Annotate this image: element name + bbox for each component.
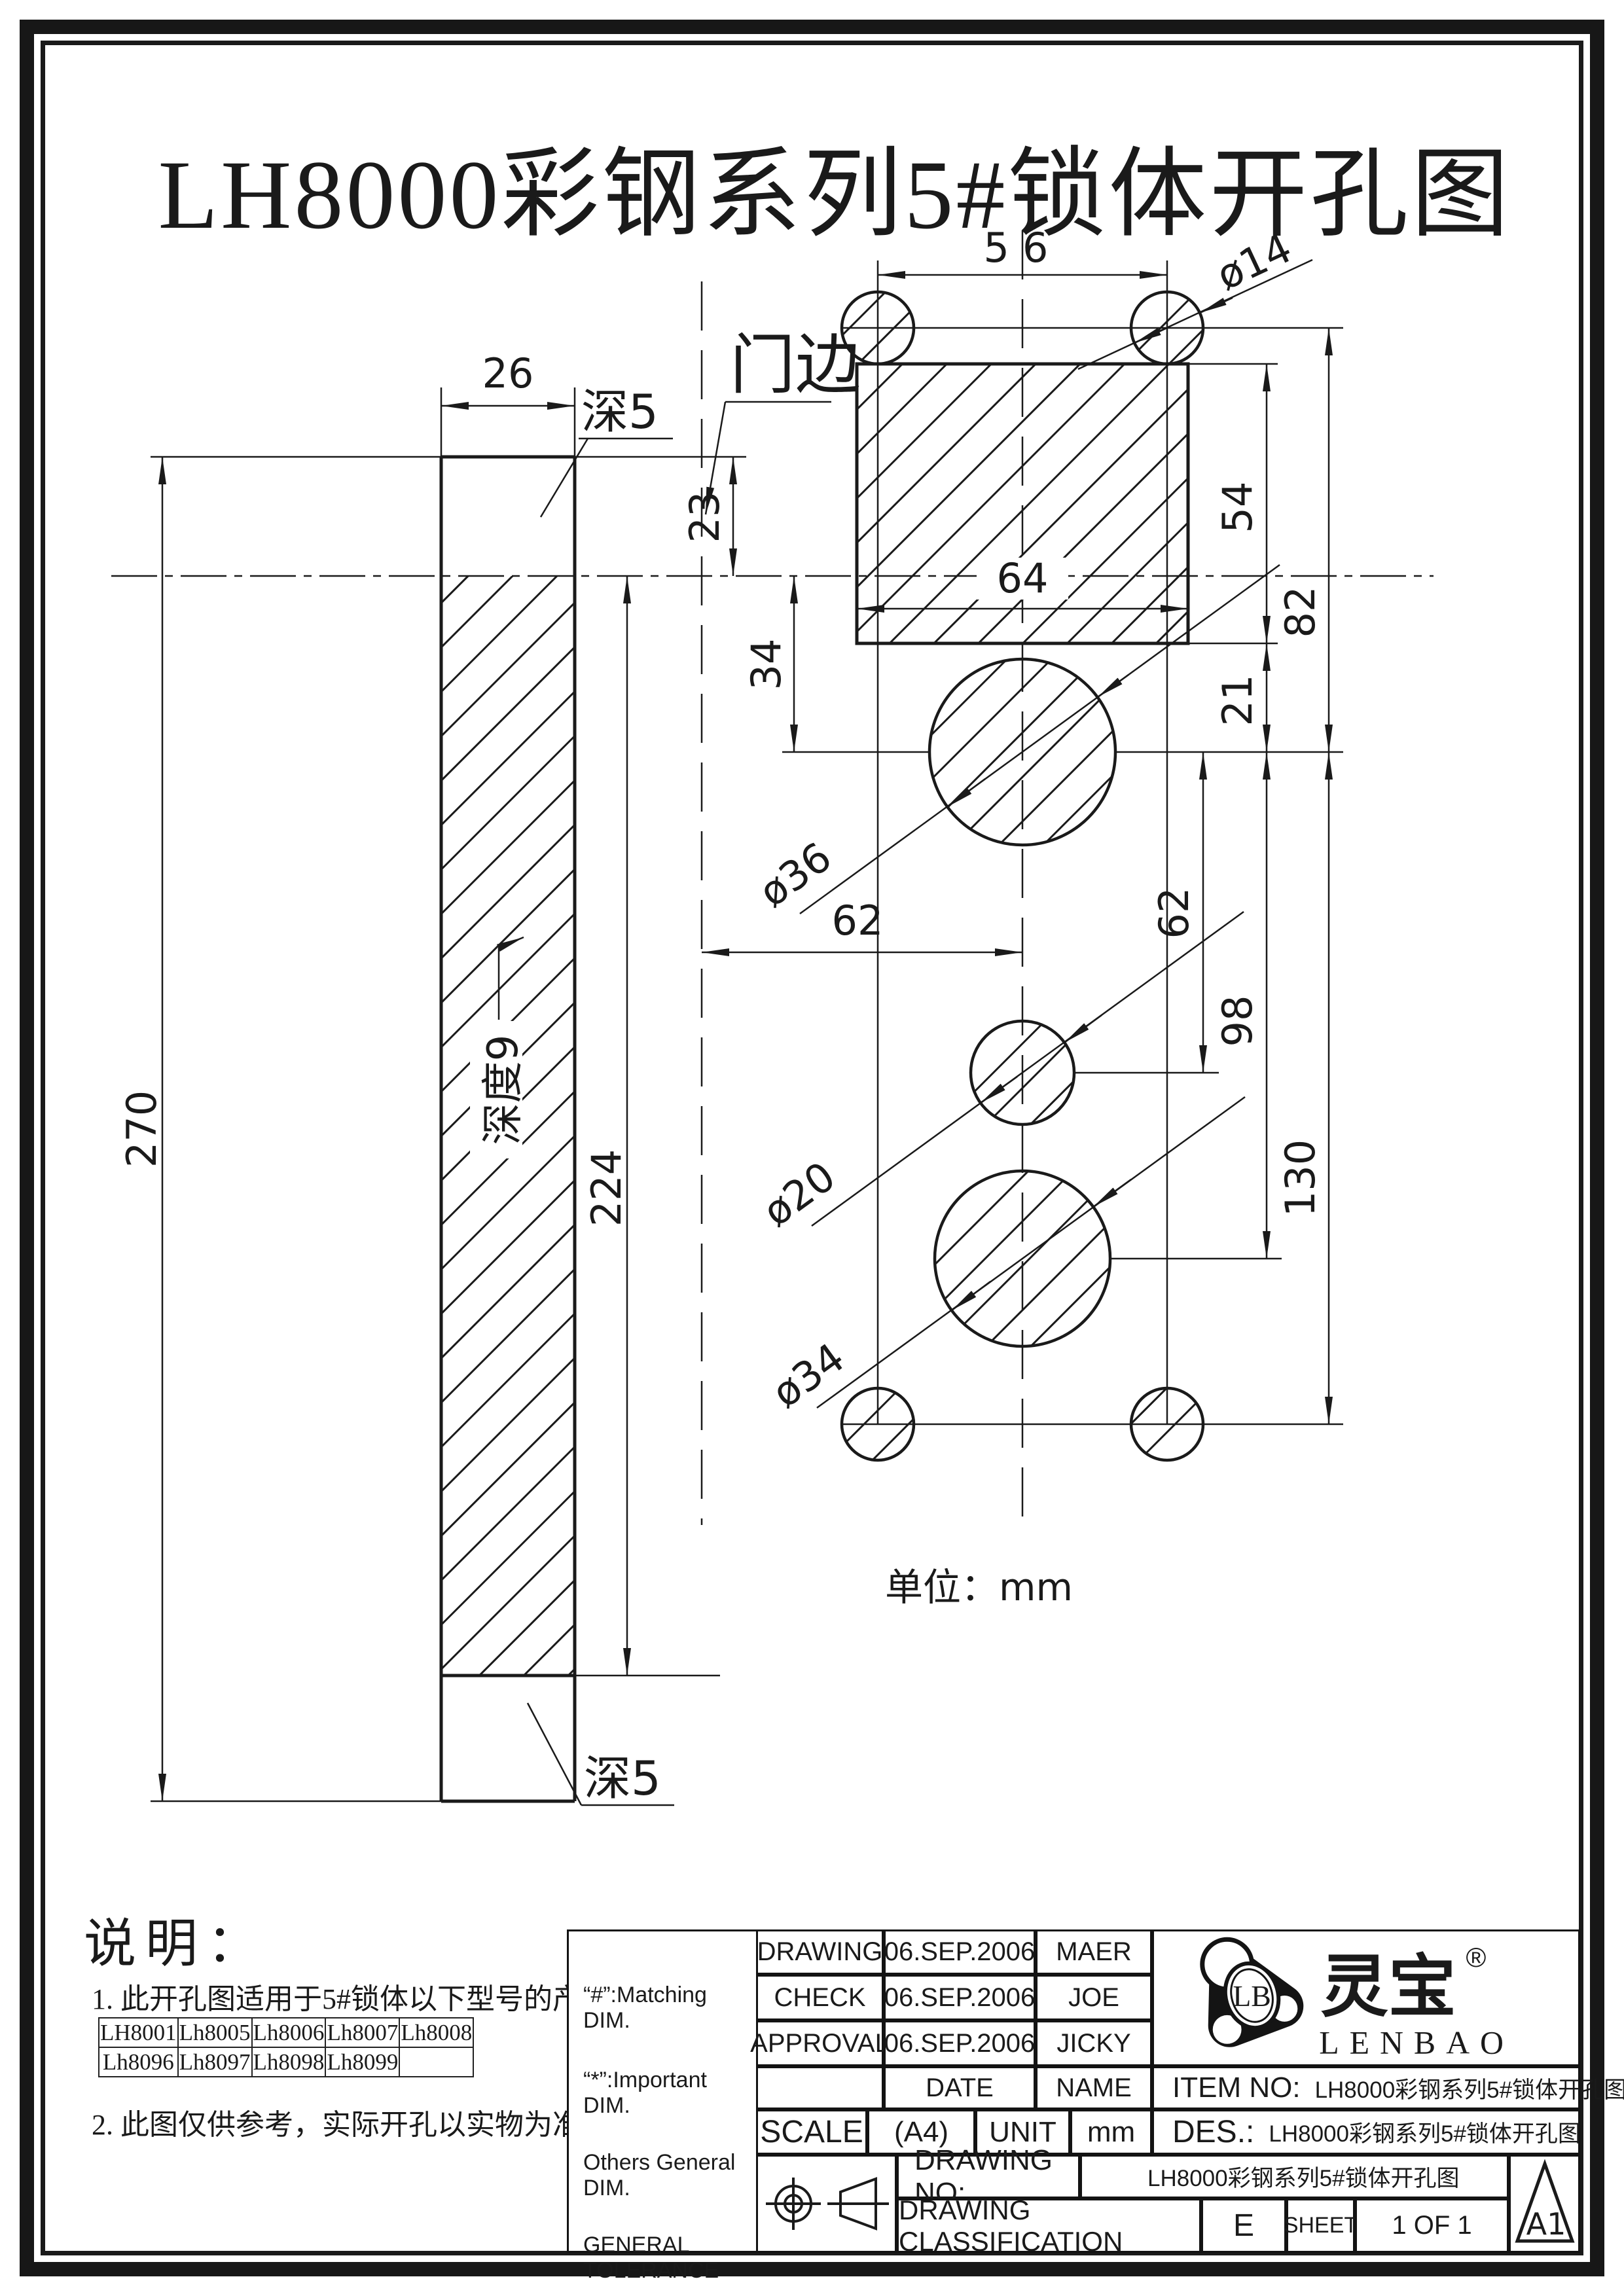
depth5-bottom-label: 深5 (584, 1751, 661, 1806)
size-code-triangle-icon: A1 (1512, 2157, 1578, 2250)
unit-note: 单位：mm (885, 1565, 1073, 1609)
dim-62-vertical: 62 (1150, 888, 1198, 939)
logo-monogram: LB (1233, 1979, 1271, 2012)
approval-date-cell: 06.SEP.2006 (884, 2020, 1036, 2066)
dim-64: 64 (997, 554, 1049, 602)
registered-mark-icon: ® (1466, 1942, 1487, 1973)
lock-body-view (782, 260, 1343, 1460)
lenbao-logo: LB 灵宝 ® LENBAO (1154, 1933, 1578, 2064)
drawing-no-value-cell: LH8000彩钢系列5#锁体开孔图 (1080, 2155, 1509, 2198)
note-1: 1. 此开孔图适用于5#锁体以下型号的产品： (92, 1975, 639, 2017)
item-no-value: LH8000彩钢系列5#锁体开孔图 (1315, 2072, 1624, 2105)
sheet-label-cell: SHEET (1286, 2198, 1355, 2253)
model-cell: Lh8098 (252, 2047, 326, 2077)
model-cell: Lh8005 (178, 2018, 252, 2047)
dia-36-label: ø36 (750, 833, 840, 916)
des-label: DES.: (1172, 2114, 1254, 2150)
dim-23: 23 (681, 492, 729, 543)
dim-54: 54 (1214, 482, 1261, 533)
third-angle-projection-icon (759, 2158, 893, 2250)
dim-21: 21 (1214, 675, 1261, 726)
depth9-label: 深度9 (479, 1035, 528, 1145)
dim-224: 224 (583, 1149, 630, 1227)
des-cell: DES.: LH8000彩钢系列5#锁体开孔图 (1152, 2109, 1580, 2155)
approval-role-cell: APPROVAL (756, 2020, 884, 2066)
dim-34: 34 (742, 639, 790, 691)
classification-value-cell: E (1201, 2198, 1286, 2253)
drawing-role-cell: DRAWING (756, 1929, 884, 1975)
model-cell: Lh8006 (252, 2018, 326, 2047)
company-logo-cell: LB 灵宝 ® LENBAO (1152, 1929, 1580, 2066)
tolerance-notes-cell: “#”:Matching DIM. “*”:Important DIM. Oth… (567, 1929, 758, 2253)
model-cell: Lh8097 (178, 2047, 252, 2077)
tolerance-matching: “#”:Matching DIM. (583, 1982, 756, 2034)
door-edge-label: 门边 (730, 327, 861, 403)
model-cell: Lh8096 (99, 2047, 178, 2077)
logo-latin-name: LENBAO (1319, 2024, 1514, 2060)
note-2: 2. 此图仅供参考，实际开孔以实物为准. (92, 2101, 588, 2143)
des-value: LH8000彩钢系列5#锁体开孔图 (1269, 2115, 1581, 2149)
dim-98: 98 (1214, 996, 1261, 1047)
model-cell: Lh8007 (325, 2018, 399, 2047)
dim-56: 56 (984, 224, 1062, 272)
table-row: Lh8096 Lh8097 Lh8098 Lh8099 (99, 2047, 473, 2077)
scale-label-cell: SCALE (756, 2109, 867, 2155)
approval-name-cell: JICKY (1036, 2020, 1152, 2066)
dim-130: 130 (1276, 1139, 1324, 1217)
size-code-cell: A1 (1509, 2155, 1580, 2253)
drawing-sheet: LH8000彩钢系列5#锁体开孔图 (0, 0, 1624, 2296)
unit-value-cell: mm (1070, 2109, 1152, 2155)
dia-20-label: ø20 (754, 1152, 844, 1236)
check-date-cell: 06.SEP.2006 (884, 1975, 1036, 2020)
model-cell: Lh8008 (399, 2018, 473, 2047)
tolerance-general-1: GENERAL TOLERANCE (583, 2233, 756, 2284)
notes-heading: 说明： (84, 1901, 268, 1977)
model-cell: Lh8099 (325, 2047, 399, 2077)
dia-14-label: ø14 (1209, 224, 1299, 300)
date-header-cell: DATE (884, 2066, 1036, 2109)
model-table: LH8001 Lh8005 Lh8006 Lh8007 Lh8008 Lh809… (98, 2017, 474, 2077)
door-edge-section (151, 387, 746, 1801)
blank-cell (756, 2066, 884, 2109)
dia-34-label: ø34 (763, 1333, 853, 1417)
depth5-top-label: 深5 (581, 384, 659, 439)
technical-drawing: 26 深5 23 270 224 深度9 深5 门边 56 ø14 64 34 … (0, 216, 1624, 1852)
item-no-cell: ITEM NO: LH8000彩钢系列5#锁体开孔图 (1152, 2066, 1580, 2109)
drawing-date-cell: 06.SEP.2006 (884, 1929, 1036, 1975)
item-no-label: ITEM NO: (1172, 2072, 1301, 2104)
table-row: LH8001 Lh8005 Lh8006 Lh8007 Lh8008 (99, 2018, 473, 2047)
projection-symbol-cell (756, 2155, 897, 2253)
model-cell (399, 2047, 473, 2077)
check-name-cell: JOE (1036, 1975, 1152, 2020)
dim-270: 270 (118, 1090, 166, 1168)
model-cell: LH8001 (99, 2018, 178, 2047)
logo-chinese-name: 灵宝 (1320, 1946, 1456, 2026)
dim-26: 26 (482, 350, 534, 397)
dim-62-horizontal: 62 (832, 897, 884, 944)
tolerance-others: Others General DIM. (583, 2150, 756, 2201)
dim-82: 82 (1276, 586, 1324, 638)
name-header-cell: NAME (1036, 2066, 1152, 2109)
drawing-name-cell: MAER (1036, 1929, 1152, 1975)
sheet-value-cell: 1 OF 1 (1355, 2198, 1509, 2253)
size-code: A1 (1526, 2206, 1566, 2242)
drawing-no-label-cell: DRAWING NO: (897, 2155, 1080, 2198)
classification-label-cell: DRAWING CLASSIFICATION (897, 2198, 1201, 2253)
tolerance-important: “*”:Important DIM. (583, 2068, 756, 2119)
check-role-cell: CHECK (756, 1975, 884, 2020)
